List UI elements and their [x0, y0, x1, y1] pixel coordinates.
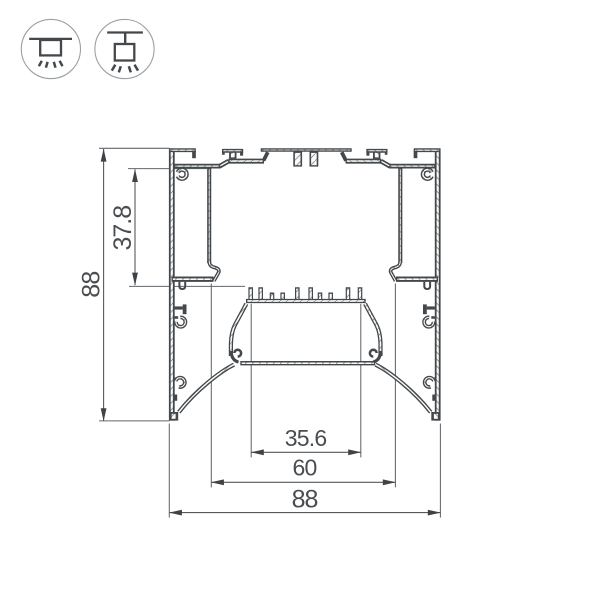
svg-text:60: 60 [293, 455, 317, 481]
svg-text:37.8: 37.8 [109, 206, 137, 251]
svg-text:88: 88 [292, 485, 318, 513]
svg-text:88: 88 [77, 271, 105, 297]
svg-text:35.6: 35.6 [285, 425, 327, 451]
